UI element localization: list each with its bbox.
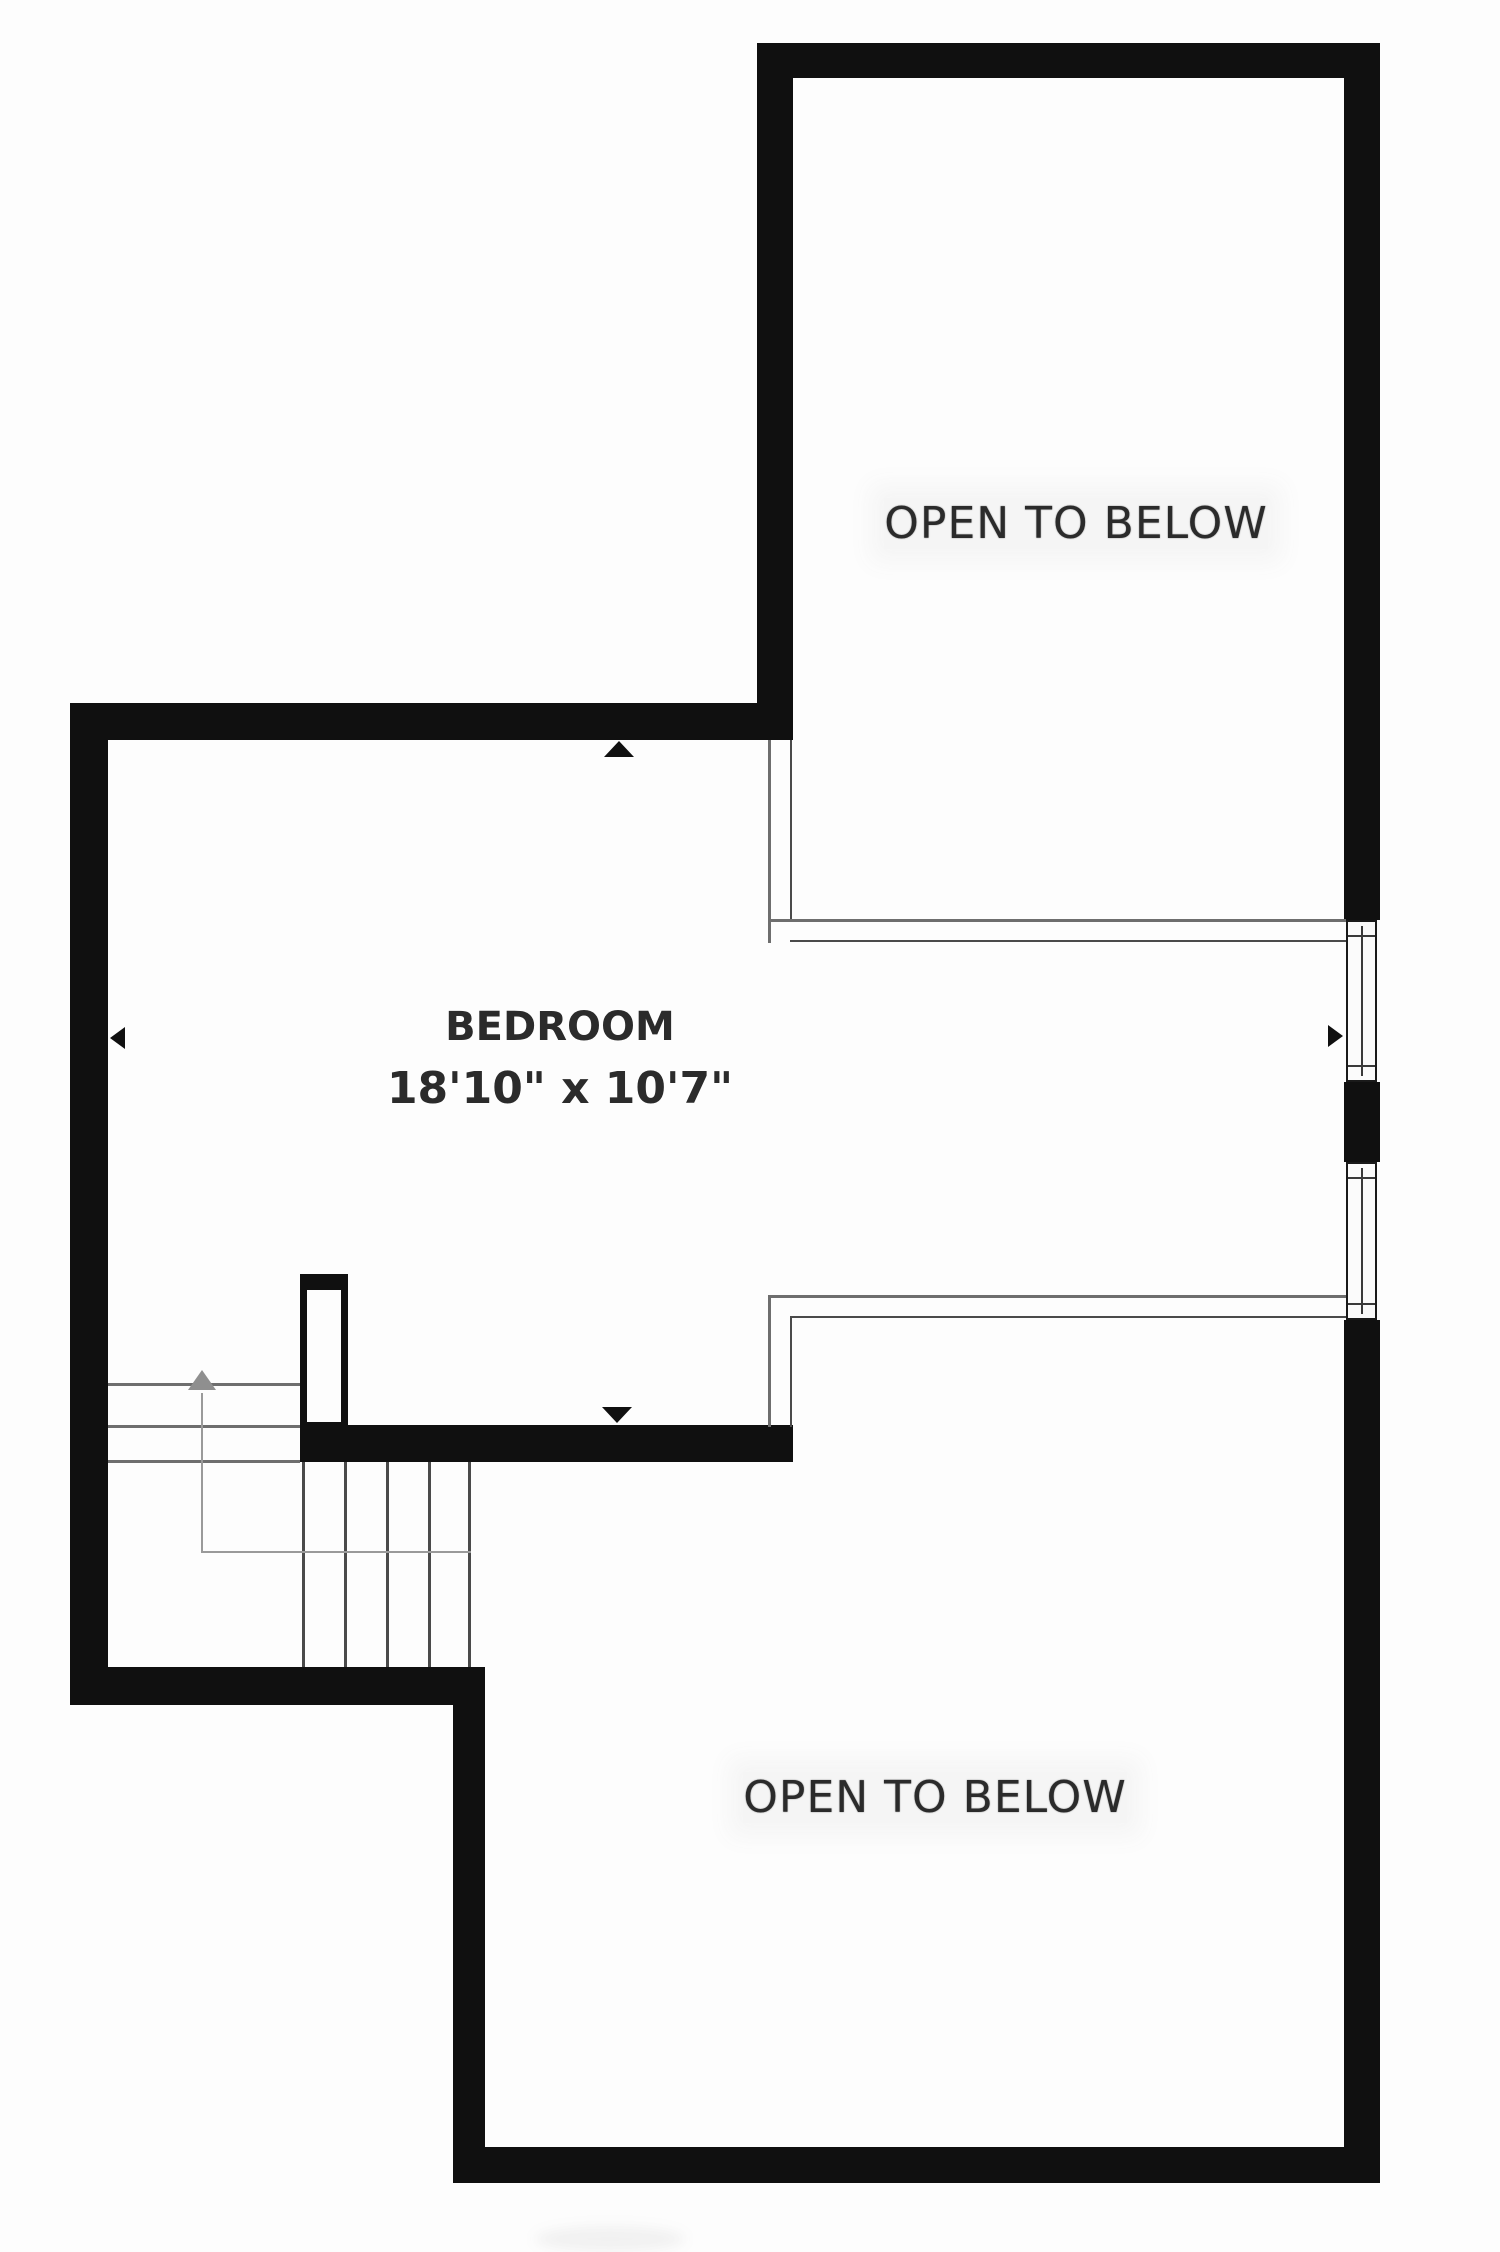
wall-marker-up-icon: [604, 741, 634, 757]
window-tick: [1348, 1065, 1375, 1067]
lower-opening-edge-vertical-outer: [768, 1295, 771, 1427]
bedroom-dimensions: 18'10" x 10'7": [310, 1056, 810, 1122]
stair-guide-horizontal: [201, 1551, 471, 1553]
lower-open-to-below-label: OPEN TO BELOW: [685, 1772, 1185, 1823]
wall-bedroom-top: [70, 703, 793, 740]
wall-marker-down-icon: [602, 1407, 632, 1423]
floor-plan: OPEN TO BELOW BEDROOM 18'10" x 10'7" OPE…: [0, 0, 1500, 2252]
stair-tread: [428, 1462, 431, 1667]
wall-bedroom-left: [70, 703, 108, 1705]
wall-bottom: [453, 2147, 1380, 2183]
wall-right-between-windows: [1344, 1082, 1380, 1162]
stair-tread: [468, 1462, 471, 1667]
right-wall-window-lower: [1346, 1162, 1377, 1320]
stair-guide-vertical: [201, 1393, 203, 1553]
lower-opening-edge-vertical-inner: [790, 1316, 792, 1427]
lower-opening-edge-horizontal-inner: [790, 1316, 1346, 1318]
stair-tread: [302, 1462, 305, 1667]
scan-smudge: [535, 2226, 685, 2252]
wall-right-lower-segment: [1344, 1320, 1380, 2183]
window-center-line: [1361, 926, 1363, 1076]
stair-landing-line-3: [108, 1460, 300, 1463]
wall-stairwell: [300, 1425, 793, 1462]
dimension-arrow-left-icon: [110, 1027, 125, 1049]
wall-bedroom-bottom: [70, 1667, 483, 1705]
bedroom-name: BEDROOM: [310, 998, 810, 1056]
upper-open-to-below-label: OPEN TO BELOW: [826, 498, 1326, 549]
window-tick: [1348, 935, 1375, 937]
window-center-line: [1361, 1168, 1363, 1314]
window-tick: [1348, 1303, 1375, 1305]
right-wall-window-upper: [1346, 920, 1377, 1082]
upper-opening-edge-horizontal-outer: [768, 919, 1346, 922]
stair-direction-up-icon: [188, 1370, 216, 1390]
window-tick: [1348, 1177, 1375, 1179]
stair-tread: [344, 1462, 347, 1667]
stair-newel-wall: [300, 1274, 348, 1429]
stair-tread: [386, 1462, 389, 1667]
lower-opening-edge-horizontal-outer: [768, 1295, 1346, 1298]
upper-opening-edge-vertical-outer: [768, 740, 771, 943]
bedroom-label: BEDROOM 18'10" x 10'7": [310, 998, 810, 1122]
dimension-arrow-right-icon: [1328, 1025, 1343, 1047]
lower-open-to-below-text: OPEN TO BELOW: [743, 1772, 1126, 1823]
wall-upper-room-left: [757, 43, 793, 740]
wall-right-upper-segment: [1344, 43, 1380, 920]
upper-opening-edge-horizontal-inner: [790, 940, 1346, 942]
upper-opening-edge-vertical-inner: [790, 740, 792, 922]
wall-upper-room-top: [757, 43, 1380, 78]
wall-lower-room-left: [453, 1667, 485, 2183]
stair-landing-line-2: [108, 1425, 300, 1428]
upper-open-to-below-text: OPEN TO BELOW: [884, 498, 1267, 549]
